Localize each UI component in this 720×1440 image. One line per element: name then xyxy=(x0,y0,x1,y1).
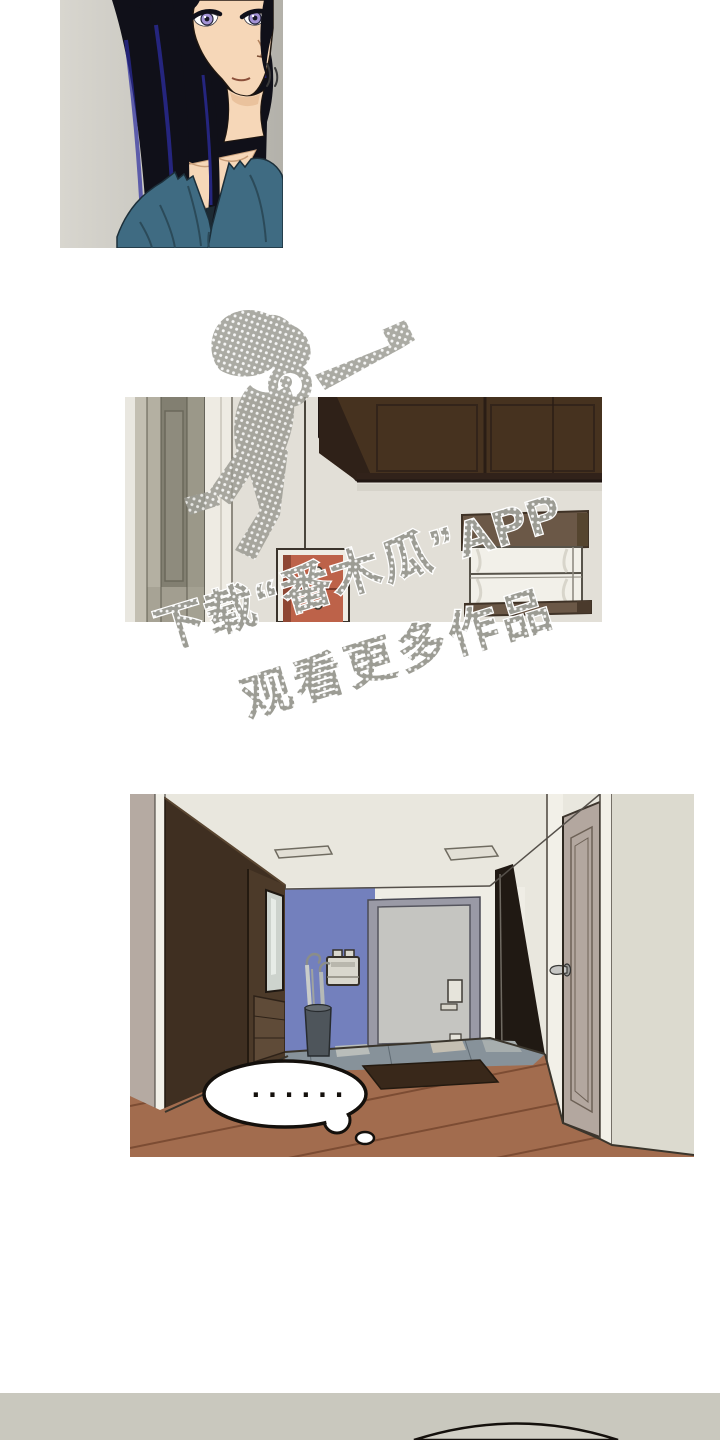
hallway-art: ...... xyxy=(130,794,694,1157)
webtoon-page: 下载“番木瓜”APP 观看更多作品 xyxy=(0,0,720,1440)
window-sill xyxy=(465,601,591,616)
kitchen-art xyxy=(125,397,602,622)
panel-portrait xyxy=(60,0,283,248)
right-door xyxy=(547,794,694,1155)
thought-bubble-text: ...... xyxy=(248,1074,348,1104)
window xyxy=(462,511,591,616)
nostril xyxy=(257,56,262,57)
door-lock xyxy=(448,980,462,1002)
wall-corner xyxy=(205,397,233,622)
panel-hallway: ...... xyxy=(130,794,694,1157)
window-valance xyxy=(462,511,588,550)
portrait-art xyxy=(60,0,283,248)
stand-body xyxy=(305,1008,331,1056)
bubble-tail xyxy=(356,1132,374,1144)
entrance-door xyxy=(368,897,480,1046)
right-door-right-casing xyxy=(600,794,612,1145)
entrance-door-slab xyxy=(378,905,470,1044)
mirror-reflection xyxy=(271,898,276,975)
panel-kitchen xyxy=(125,397,602,622)
left-door xyxy=(125,397,205,622)
next-panel-art xyxy=(0,1393,720,1440)
valance-side xyxy=(577,513,588,546)
next-panel-background xyxy=(0,1393,720,1440)
panel-next-cut xyxy=(0,1393,720,1440)
right-outer-wall xyxy=(612,794,694,1155)
shoe-cabinet xyxy=(254,996,285,1062)
sill-end xyxy=(577,601,591,613)
upper-cabinets xyxy=(319,397,602,491)
red-cabinet xyxy=(277,549,349,622)
door-lock-plate xyxy=(441,1004,457,1010)
